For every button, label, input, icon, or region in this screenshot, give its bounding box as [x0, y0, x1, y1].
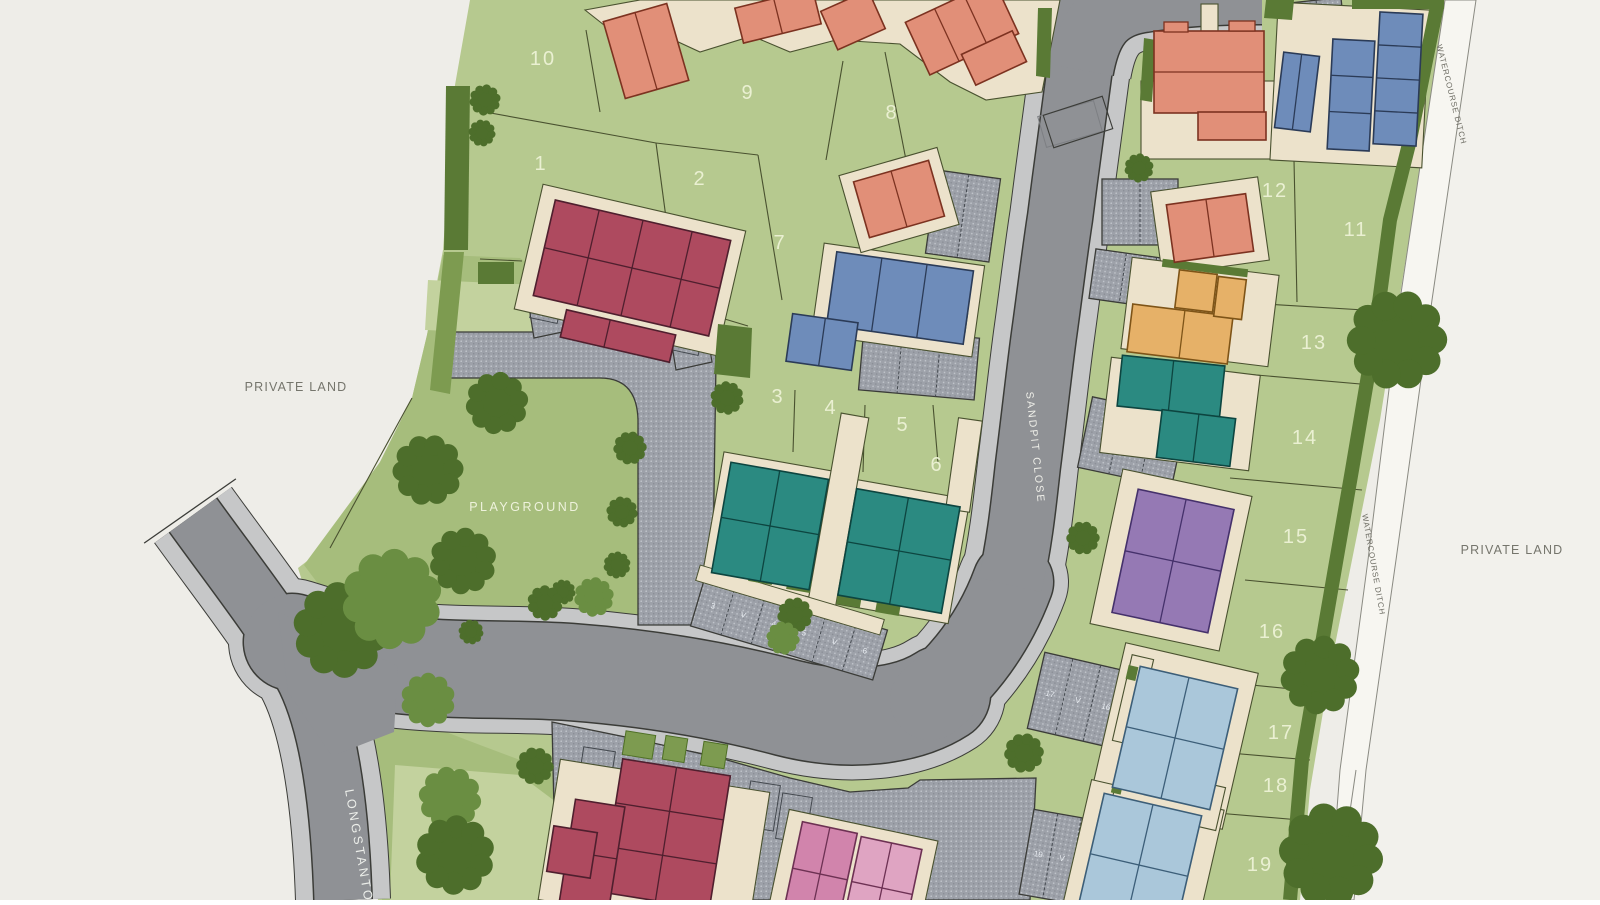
svg-text:8: 8: [885, 102, 898, 124]
svg-text:9: 9: [741, 82, 754, 104]
svg-text:3: 3: [771, 386, 784, 408]
svg-text:14: 14: [1292, 427, 1318, 449]
svg-text:13: 13: [1301, 332, 1327, 354]
svg-text:PRIVATE LAND: PRIVATE LAND: [245, 380, 348, 394]
svg-text:PLAYGROUND: PLAYGROUND: [469, 500, 581, 514]
svg-text:PRIVATE LAND: PRIVATE LAND: [1461, 543, 1564, 557]
svg-text:10: 10: [530, 48, 556, 70]
svg-text:12: 12: [1262, 180, 1288, 202]
svg-text:6: 6: [930, 454, 943, 476]
svg-text:17: 17: [1268, 722, 1294, 744]
svg-text:16: 16: [1259, 621, 1285, 643]
svg-text:11: 11: [1344, 219, 1369, 241]
svg-text:19: 19: [1247, 854, 1273, 876]
svg-text:1: 1: [534, 153, 547, 175]
svg-text:7: 7: [773, 232, 786, 254]
svg-text:18: 18: [1263, 775, 1289, 797]
svg-text:15: 15: [1283, 526, 1309, 548]
svg-text:5: 5: [896, 414, 909, 436]
svg-text:4: 4: [824, 397, 837, 419]
svg-text:2: 2: [693, 168, 706, 190]
